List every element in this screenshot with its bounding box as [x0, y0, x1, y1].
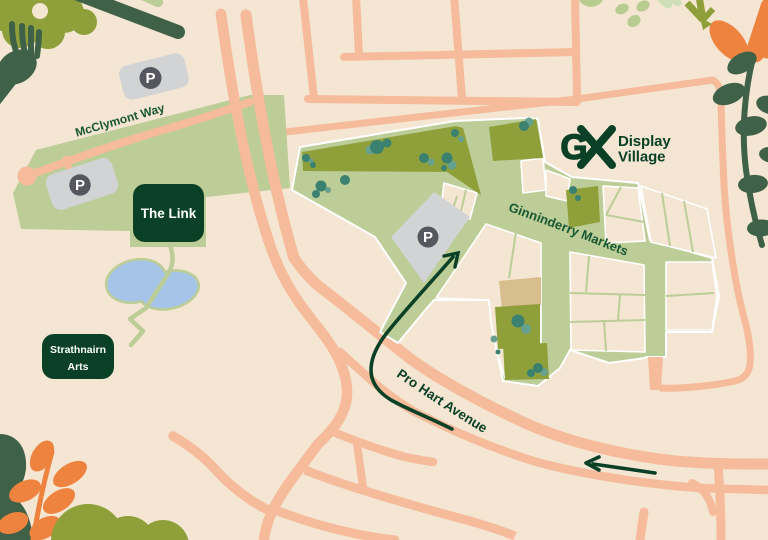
- svg-text:Arts: Arts: [67, 361, 88, 373]
- svg-text:P: P: [145, 70, 155, 87]
- svg-text:Village: Village: [618, 149, 665, 166]
- svg-text:The Link: The Link: [141, 206, 197, 221]
- svg-text:Display: Display: [618, 133, 671, 150]
- svg-text:Strathnairn: Strathnairn: [50, 344, 106, 356]
- svg-text:P: P: [423, 229, 433, 246]
- svg-text:P: P: [75, 177, 85, 194]
